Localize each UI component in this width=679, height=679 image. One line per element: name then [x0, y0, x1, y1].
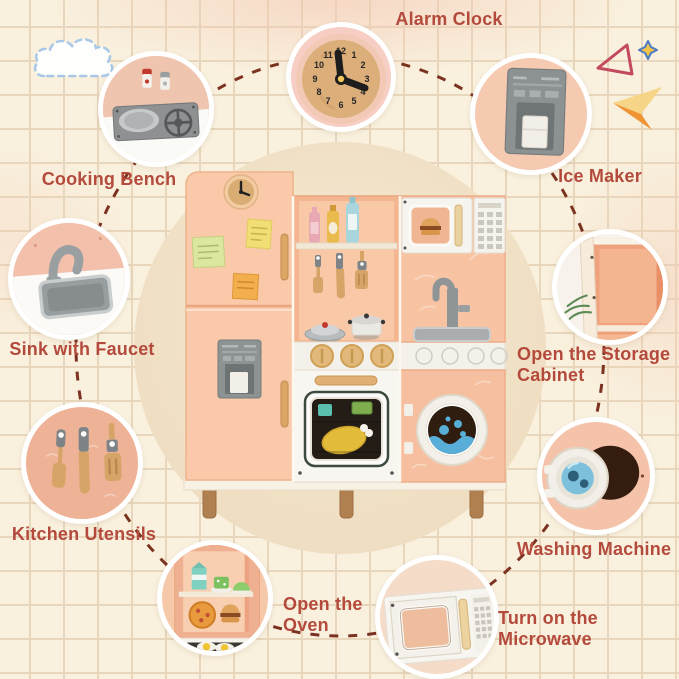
- fridge-handle-upper: [281, 234, 288, 280]
- cloud-icon: [35, 39, 112, 76]
- microwave-icon: [380, 560, 494, 674]
- feature-bubble-washing-machine: [537, 417, 655, 535]
- feature-bubble-sink: [8, 218, 130, 340]
- feature-label-storage-cabinet: Open the Storage Cabinet: [517, 344, 679, 386]
- feature-label-kitchen-utensils: Kitchen Utensils: [12, 524, 156, 545]
- fridge-handle-lower: [281, 381, 288, 427]
- feature-bubble-storage-cabinet: [552, 229, 668, 345]
- svg-text:2: 2: [360, 60, 365, 70]
- open-oven-icon: [162, 545, 268, 651]
- svg-text:6: 6: [338, 100, 343, 110]
- sparkle-icon: [639, 41, 657, 59]
- feature-label-sink: Sink with Faucet: [9, 339, 154, 360]
- fridge-unit: [186, 172, 293, 480]
- feature-bubble-ice-maker: [470, 53, 592, 175]
- product-feature-diagram: 12 1 2 3 4 5 6 7 8 9 10 11: [0, 0, 679, 679]
- feature-label-washing-machine: Washing Machine: [517, 539, 671, 560]
- stove-knobs: [311, 345, 393, 367]
- middle-cabinet: [293, 196, 400, 342]
- feature-bubble-alarm-clock: 12 1 2 3 4 5 6 7 8 9 10 11: [286, 22, 396, 132]
- fridge-clock-icon: [224, 175, 258, 209]
- washing-machine-icon: [542, 422, 650, 530]
- sink-faucet-icon: [13, 223, 125, 335]
- feature-label-microwave: Turn on the Microwave: [498, 608, 618, 650]
- toy-oven: [293, 370, 400, 482]
- paper-plane-icon: [613, 87, 662, 130]
- sink-and-microwave-section: [400, 196, 505, 342]
- kitchen-playset-illustration: [184, 172, 507, 518]
- svg-text:10: 10: [314, 60, 324, 70]
- feature-label-cooking-bench: Cooking Bench: [42, 169, 177, 190]
- svg-text:9: 9: [312, 74, 317, 84]
- feature-label-ice-maker: Ice Maker: [558, 166, 642, 187]
- microwave-keypad: [474, 198, 505, 253]
- svg-text:7: 7: [325, 96, 330, 106]
- feature-label-open-oven: Open the Oven: [283, 594, 378, 636]
- svg-text:11: 11: [323, 50, 333, 60]
- feature-bubble-microwave: [375, 555, 499, 679]
- feature-bubble-cooking-bench: [98, 51, 214, 167]
- fridge-ice-dispenser: [218, 340, 261, 398]
- shelf-board: [296, 243, 397, 249]
- svg-text:1: 1: [351, 50, 356, 60]
- alarm-clock-icon: 12 1 2 3 4 5 6 7 8 9 10 11: [291, 27, 391, 127]
- ice-maker-icon: [475, 58, 587, 170]
- toy-microwave: [402, 198, 472, 253]
- toy-washing-machine: [400, 370, 505, 482]
- feature-bubble-open-oven: [157, 540, 273, 656]
- feature-label-alarm-clock: Alarm Clock: [395, 9, 502, 30]
- svg-text:3: 3: [364, 74, 369, 84]
- triangle-icon: [598, 45, 632, 74]
- svg-text:8: 8: [316, 87, 321, 97]
- cooking-bench-icon: [103, 56, 209, 162]
- svg-text:5: 5: [351, 96, 356, 106]
- storage-cabinet-icon: [557, 234, 663, 340]
- feature-bubble-kitchen-utensils: [21, 402, 143, 524]
- kitchen-utensils-icon: [26, 407, 138, 519]
